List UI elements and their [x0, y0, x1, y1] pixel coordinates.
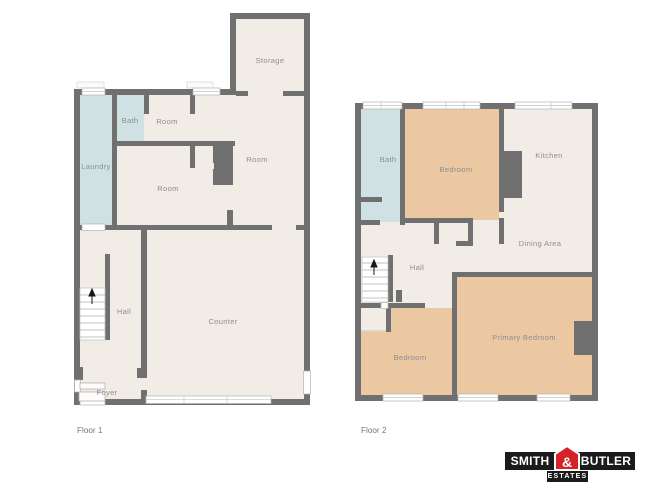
- exterior-window-tabs-f1: [77, 82, 213, 88]
- room-label-room-top-f1: Room: [156, 117, 177, 126]
- logo-word-smith: SMITH: [507, 452, 553, 470]
- room-label-storage-f1: Storage: [256, 56, 285, 65]
- fireplace-notch-f1: [211, 163, 214, 169]
- room-label-laundry-f1: Laundry: [81, 162, 111, 171]
- agency-logo: SMITH BUTLER & ESTATES: [505, 444, 636, 483]
- logo-tagline: ESTATES: [547, 471, 588, 482]
- floorplan-page: Storage Bath Room Laundry Room Room Hall…: [0, 0, 668, 501]
- room-bath-f2: [361, 109, 400, 222]
- room-label-bedroom-f2: Bedroom: [440, 165, 473, 174]
- floor2-caption: Floor 2: [361, 426, 387, 435]
- closet-edge-f2: [358, 330, 386, 332]
- room-label-counter-f1: Counter: [208, 317, 237, 326]
- kitchen-counter-block-f2: [504, 151, 522, 198]
- room-laundry-f1: [80, 95, 112, 225]
- floor1-plan: Storage Bath Room Laundry Room Room Hall…: [74, 13, 311, 435]
- floor1-caption: Floor 1: [77, 426, 103, 435]
- floor2-plan: Bath Bedroom Kitchen Dining Area Hall Be…: [355, 102, 598, 435]
- room-storage-f1: [233, 16, 304, 94]
- room-label-bath-f2: Bath: [380, 155, 397, 164]
- room-label-foyer-f1: Foyer: [97, 388, 118, 397]
- room-label-bath-f1: Bath: [122, 116, 139, 125]
- room-label-hall-f1: Hall: [117, 307, 131, 316]
- closet-nook-f2: [361, 308, 386, 331]
- room-label-bedroom2-f2: Bedroom: [394, 353, 427, 362]
- fireplace-block-f1: [213, 141, 233, 185]
- room-label-primary-f2: Primary Bedroom: [492, 333, 556, 342]
- room-label-room-right-f1: Room: [246, 155, 267, 164]
- staircase-f1: [80, 288, 105, 340]
- staircase-f2: [362, 257, 388, 302]
- logo-ampersand: &: [562, 454, 572, 470]
- logo-house-icon: &: [552, 444, 582, 472]
- room-label-room-middle-f1: Room: [157, 184, 178, 193]
- primary-bedroom-block-f2: [574, 321, 592, 355]
- floorplan-drawing: Storage Bath Room Laundry Room Room Hall…: [0, 0, 668, 501]
- logo-word-butler: BUTLER: [579, 452, 633, 470]
- room-label-kitchen-f2: Kitchen: [535, 151, 562, 160]
- room-label-hall-f2: Hall: [410, 263, 424, 272]
- room-label-dining-f2: Dining Area: [519, 239, 562, 248]
